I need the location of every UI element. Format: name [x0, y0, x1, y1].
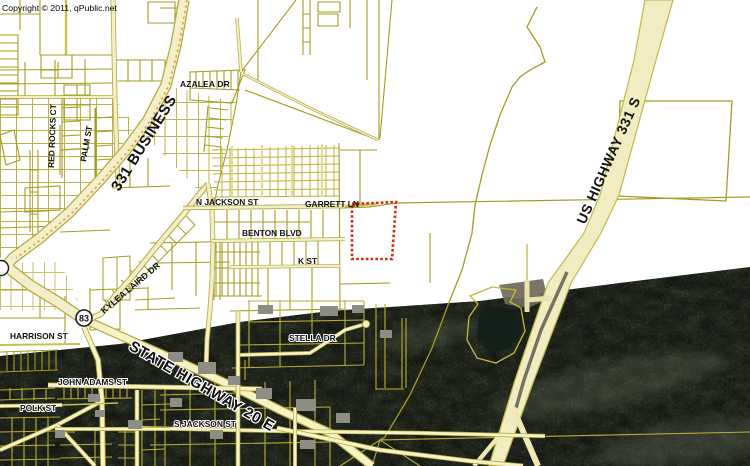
svg-text:N JACKSON ST: N JACKSON ST: [196, 197, 259, 207]
svg-text:BENTON BLVD: BENTON BLVD: [242, 228, 302, 238]
svg-text:83: 83: [79, 314, 89, 324]
svg-text:POLK ST: POLK ST: [20, 403, 57, 413]
svg-text:JOHN ADAMS ST: JOHN ADAMS ST: [58, 377, 128, 387]
svg-text:STELLA DR: STELLA DR: [289, 333, 336, 343]
svg-text:Copyright © 2011, qPublic.net: Copyright © 2011, qPublic.net: [2, 3, 117, 13]
svg-text:HARRISON ST: HARRISON ST: [10, 331, 69, 341]
svg-text:K ST: K ST: [298, 256, 318, 266]
svg-text:S JACKSON ST: S JACKSON ST: [174, 419, 237, 429]
svg-text:GARRETT LN: GARRETT LN: [305, 199, 359, 209]
svg-text:AZALEA DR: AZALEA DR: [180, 79, 230, 89]
